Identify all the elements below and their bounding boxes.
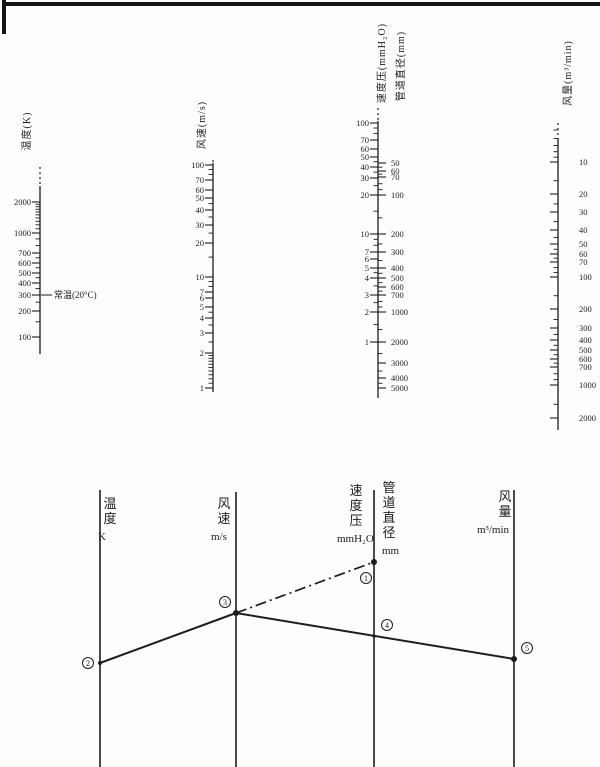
scale-title: 温度(K) bbox=[20, 112, 33, 151]
tick-label: 2000 bbox=[579, 413, 596, 423]
tick-label: 100 bbox=[356, 118, 369, 128]
tick-label: 4 bbox=[200, 313, 205, 323]
tick-label: 300 bbox=[18, 290, 31, 300]
schematic-axis-unit: mm bbox=[382, 545, 400, 557]
point-dot bbox=[233, 610, 239, 616]
tick-label: 70 bbox=[391, 172, 400, 182]
circled-number-digit: 1 bbox=[364, 574, 368, 583]
tick-label: 400 bbox=[18, 278, 31, 288]
scanned-nomogram-page: 温度(K)20001000700600500400300200100常温(20°… bbox=[0, 0, 600, 767]
tick-label: 1000 bbox=[579, 380, 596, 390]
tick-label: 700 bbox=[18, 248, 31, 258]
tick-label: 700 bbox=[391, 290, 404, 300]
tick-label: 100 bbox=[18, 332, 31, 342]
tick-label: 5 bbox=[200, 302, 204, 312]
point-dot bbox=[372, 634, 376, 638]
point-dot bbox=[371, 559, 377, 565]
circled-number-digit: 5 bbox=[525, 644, 529, 653]
tick-label: 20 bbox=[196, 238, 205, 248]
tick-label: 500 bbox=[18, 268, 31, 278]
scale-tick-group-1: 5060701002003004005006007001000200030004… bbox=[378, 158, 408, 393]
tick-label: 10 bbox=[196, 272, 205, 282]
scale-title-secondary: 管道直径(mm) bbox=[394, 31, 407, 101]
circled-number-digit: 3 bbox=[223, 598, 227, 607]
schematic-axis-label-char: 度 bbox=[103, 511, 116, 526]
tick-label: 2 bbox=[365, 307, 369, 317]
scale-tick-group-0: 100706050403020107654321 bbox=[191, 160, 213, 393]
schematic-axis-label-char: 管 bbox=[382, 480, 395, 495]
tick-label: 4 bbox=[365, 273, 370, 283]
scale-tick-group-0: 1020304050607010020030040050060070010002… bbox=[550, 130, 596, 423]
tick-label: 30 bbox=[361, 173, 370, 183]
scale-title: 风速(m/s) bbox=[196, 101, 208, 149]
tick-label: 1 bbox=[365, 337, 369, 347]
tick-label: 40 bbox=[579, 225, 588, 235]
tick-label: 1000 bbox=[391, 307, 408, 317]
schematic-connector-line-solid bbox=[100, 613, 236, 663]
schematic-axis-label-char: 径 bbox=[382, 525, 395, 540]
tick-label: 1000 bbox=[14, 228, 31, 238]
schematic-axis-4: 风量m³/min bbox=[477, 489, 514, 767]
tick-label: 3000 bbox=[391, 358, 408, 368]
tick-label: 100 bbox=[191, 160, 204, 170]
tick-label: 200 bbox=[579, 304, 592, 314]
scale-title: 风量(m³/min) bbox=[562, 40, 574, 106]
tick-label: 10 bbox=[579, 157, 588, 167]
schematic-point-4: 4 bbox=[372, 620, 392, 638]
tick-label: 2 bbox=[200, 348, 204, 358]
tick-label: 40 bbox=[196, 205, 205, 215]
page-border-top-rule bbox=[2, 2, 600, 6]
schematic-axis-label-char: 风 bbox=[217, 496, 230, 511]
scale-title: 速度压(mmH₂O) bbox=[375, 23, 388, 103]
schematic-axis-label-char: 度 bbox=[349, 498, 362, 513]
tick-label: 200 bbox=[18, 306, 31, 316]
tick-label: 50 bbox=[196, 193, 205, 203]
tick-label: 70 bbox=[196, 175, 205, 185]
point-dot bbox=[511, 656, 517, 662]
schematic-axis-label-char: 直 bbox=[382, 510, 395, 525]
tick-label: 3 bbox=[365, 290, 369, 300]
scale-velocity-pressure-and-duct-diameter: 速度压(mmH₂O)管道直径(mm)1007060504030201076543… bbox=[356, 23, 408, 398]
tick-label: 2000 bbox=[14, 197, 31, 207]
schematic-axis-1: 风速m/s bbox=[211, 492, 236, 767]
nomogram-canvas: 温度(K)20001000700600500400300200100常温(20°… bbox=[0, 0, 600, 767]
tick-label: 70 bbox=[579, 257, 588, 267]
tick-label: 40 bbox=[361, 162, 370, 172]
schematic-axis-3: 管道直径mm bbox=[382, 480, 400, 557]
schematic-point-2: 2 bbox=[83, 658, 103, 669]
schematic-connector-line-dashdot bbox=[236, 562, 374, 613]
schematic-axis-label-char: 速 bbox=[349, 483, 362, 498]
circled-number-digit: 2 bbox=[86, 659, 90, 668]
tick-label: 100 bbox=[391, 190, 404, 200]
tick-label: 100 bbox=[579, 272, 592, 282]
schematic-axis-0: 温度K bbox=[98, 490, 117, 767]
schematic-axis-label-char: 量 bbox=[498, 504, 511, 519]
tick-label: 5 bbox=[365, 263, 369, 273]
tick-label: 10 bbox=[361, 229, 370, 239]
schematic-axis-label-char: 压 bbox=[349, 513, 362, 528]
schematic-axis-unit: mmH₂O bbox=[337, 533, 374, 545]
schematic-axis-unit: m/s bbox=[211, 531, 227, 543]
usage-schematic: 温度K风速m/s速度压mmH₂O管道直径mm风量m³/min12345 bbox=[83, 480, 533, 767]
schematic-axis-unit: K bbox=[98, 531, 106, 543]
scale-tick-group-0: 20001000700600500400300200100 bbox=[14, 197, 40, 342]
tick-label: 30 bbox=[196, 220, 205, 230]
circled-number-digit: 4 bbox=[385, 621, 389, 630]
schematic-axis-label-char: 道 bbox=[382, 495, 395, 510]
tick-label: 700 bbox=[579, 362, 592, 372]
schematic-axis-label-char: 风 bbox=[498, 489, 511, 504]
tick-label: 300 bbox=[579, 323, 592, 333]
tick-label: 400 bbox=[391, 263, 404, 273]
tick-label: 50 bbox=[579, 239, 588, 249]
schematic-axis-label-char: 速 bbox=[217, 511, 230, 526]
scale-air-volume: 风量(m³/min)102030405060701002003004005006… bbox=[550, 40, 596, 430]
room-temperature-annotation: 常温(20°C) bbox=[54, 289, 97, 300]
tick-label: 4000 bbox=[391, 373, 408, 383]
scale-tick-group-0: 100706050403020107654321 bbox=[356, 118, 378, 347]
schematic-axis-2: 速度压mmH₂O bbox=[337, 483, 374, 767]
tick-label: 2000 bbox=[391, 337, 408, 347]
tick-label: 600 bbox=[18, 258, 31, 268]
schematic-axis-label-char: 温 bbox=[103, 496, 116, 511]
tick-label: 30 bbox=[579, 207, 588, 217]
tick-label: 300 bbox=[391, 247, 404, 257]
point-dot bbox=[98, 661, 102, 665]
tick-label: 1 bbox=[200, 383, 204, 393]
page-border-left-rule bbox=[2, 0, 6, 34]
tick-label: 20 bbox=[361, 190, 370, 200]
tick-label: 50 bbox=[361, 152, 370, 162]
tick-label: 5000 bbox=[391, 383, 408, 393]
schematic-axis-unit: m³/min bbox=[477, 524, 510, 536]
scale-temperature: 温度(K)20001000700600500400300200100常温(20°… bbox=[14, 112, 97, 354]
tick-label: 200 bbox=[391, 229, 404, 239]
tick-label: 400 bbox=[579, 335, 592, 345]
tick-label: 3 bbox=[200, 328, 204, 338]
tick-label: 20 bbox=[579, 189, 588, 199]
scale-air-velocity: 风速(m/s)100706050403020107654321 bbox=[191, 101, 213, 393]
